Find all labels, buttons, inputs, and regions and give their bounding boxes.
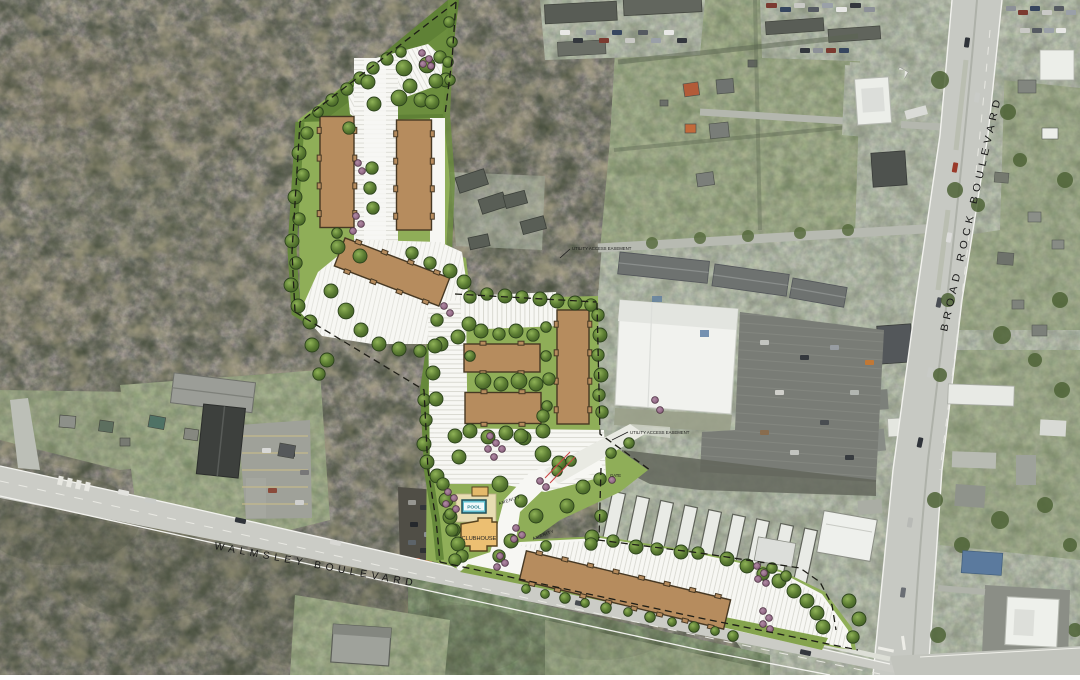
svg-text:UTILITY ACCESS EASEMENT: UTILITY ACCESS EASEMENT [630, 430, 690, 435]
svg-text:GATE: GATE [610, 473, 621, 478]
svg-text:UTILITY ACCESS EASEMENT: UTILITY ACCESS EASEMENT [572, 246, 632, 251]
svg-text:POOL: POOL [467, 505, 481, 511]
svg-text:CLUBHOUSE: CLUBHOUSE [462, 536, 497, 542]
